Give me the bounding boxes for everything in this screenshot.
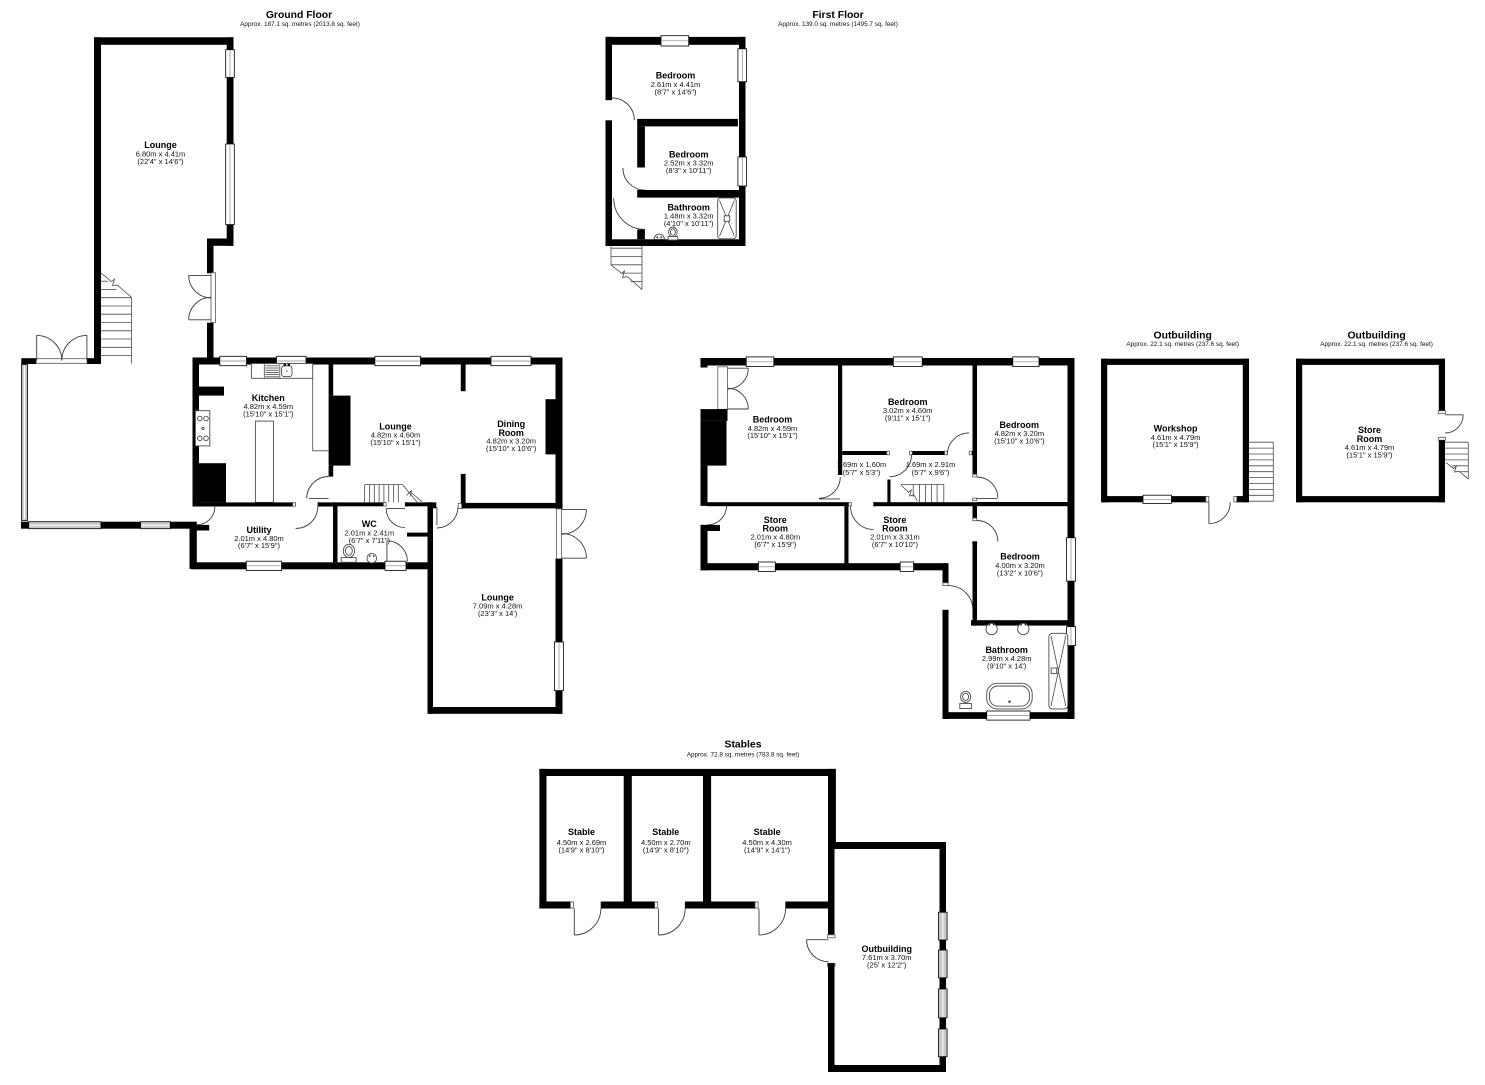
svg-text:Stable: Stable	[754, 827, 781, 837]
svg-text:(15'10" x 15'1"): (15'10" x 15'1")	[747, 431, 798, 440]
svg-text:(6'7" x 10'10"): (6'7" x 10'10")	[872, 540, 919, 549]
svg-text:First Floor: First Floor	[812, 10, 863, 21]
svg-text:Approx. 22.1 sq. metres (237.6: Approx. 22.1 sq. metres (237.6 sq. feet)	[1126, 341, 1239, 348]
svg-text:(5'7" x 5'3"): (5'7" x 5'3")	[843, 468, 881, 477]
svg-text:(9'10" x 14'): (9'10" x 14')	[987, 662, 1027, 671]
svg-text:(14'9" x 8'10"): (14'9" x 8'10")	[643, 845, 690, 854]
svg-text:Outbuilding: Outbuilding	[1154, 330, 1212, 341]
svg-text:Ground Floor: Ground Floor	[266, 10, 332, 21]
svg-text:(15'10" x 10'6"): (15'10" x 10'6")	[486, 444, 537, 453]
svg-text:(15'10" x 15'1"): (15'10" x 15'1")	[370, 438, 421, 447]
svg-text:(22'4" x 14'6"): (22'4" x 14'6")	[137, 157, 184, 166]
svg-text:(13'2" x 10'6"): (13'2" x 10'6")	[997, 568, 1044, 577]
svg-text:(14'9" x 14'1"): (14'9" x 14'1")	[744, 845, 791, 854]
svg-text:(6'7" x 15'9"): (6'7" x 15'9")	[754, 540, 796, 549]
svg-text:(15'1" x 15'9"): (15'1" x 15'9")	[1346, 450, 1393, 459]
svg-text:(4'10" x 10'11"): (4'10" x 10'11")	[664, 219, 714, 228]
svg-text:(6'7" x 15'9"): (6'7" x 15'9")	[238, 541, 280, 550]
svg-text:Approx. 72.8 sq. metres (783.8: Approx. 72.8 sq. metres (783.8 sq. feet)	[687, 752, 800, 759]
svg-text:(8'3" x 10'11"): (8'3" x 10'11")	[666, 166, 712, 175]
svg-text:(14'9" x 8'10"): (14'9" x 8'10")	[558, 845, 605, 854]
svg-text:(5'7" x 9'6"): (5'7" x 9'6")	[912, 468, 950, 477]
svg-text:(23'3" x 14'): (23'3" x 14')	[478, 609, 518, 618]
svg-text:Approx. 22.1 sq. metres (237.6: Approx. 22.1 sq. metres (237.6 sq. feet)	[1320, 341, 1433, 348]
svg-text:(15'1" x 15'9"): (15'1" x 15'9")	[1153, 440, 1200, 449]
svg-text:Approx. 139.0 sq. metres (1495: Approx. 139.0 sq. metres (1495.7 sq. fee…	[778, 21, 898, 28]
svg-text:(15'10" x 15'1"): (15'10" x 15'1")	[243, 409, 294, 418]
svg-text:Approx. 187.1 sq. metres (2013: Approx. 187.1 sq. metres (2013.8 sq. fee…	[240, 21, 360, 28]
svg-text:(25' x 12'2"): (25' x 12'2")	[867, 961, 907, 970]
svg-text:(9'11" x 15'1"): (9'11" x 15'1")	[885, 414, 931, 423]
svg-text:Stables: Stables	[725, 740, 762, 751]
svg-text:WC: WC	[362, 519, 377, 529]
svg-text:(6'7" x 7'11"): (6'7" x 7'11")	[349, 536, 391, 545]
svg-text:(15'10" x 10'6"): (15'10" x 10'6")	[994, 437, 1045, 446]
svg-text:Stable: Stable	[568, 827, 595, 837]
svg-text:Stable: Stable	[652, 827, 679, 837]
svg-text:Outbuilding: Outbuilding	[1347, 330, 1405, 341]
svg-text:(8'7" x 14'6"): (8'7" x 14'6")	[655, 87, 697, 96]
